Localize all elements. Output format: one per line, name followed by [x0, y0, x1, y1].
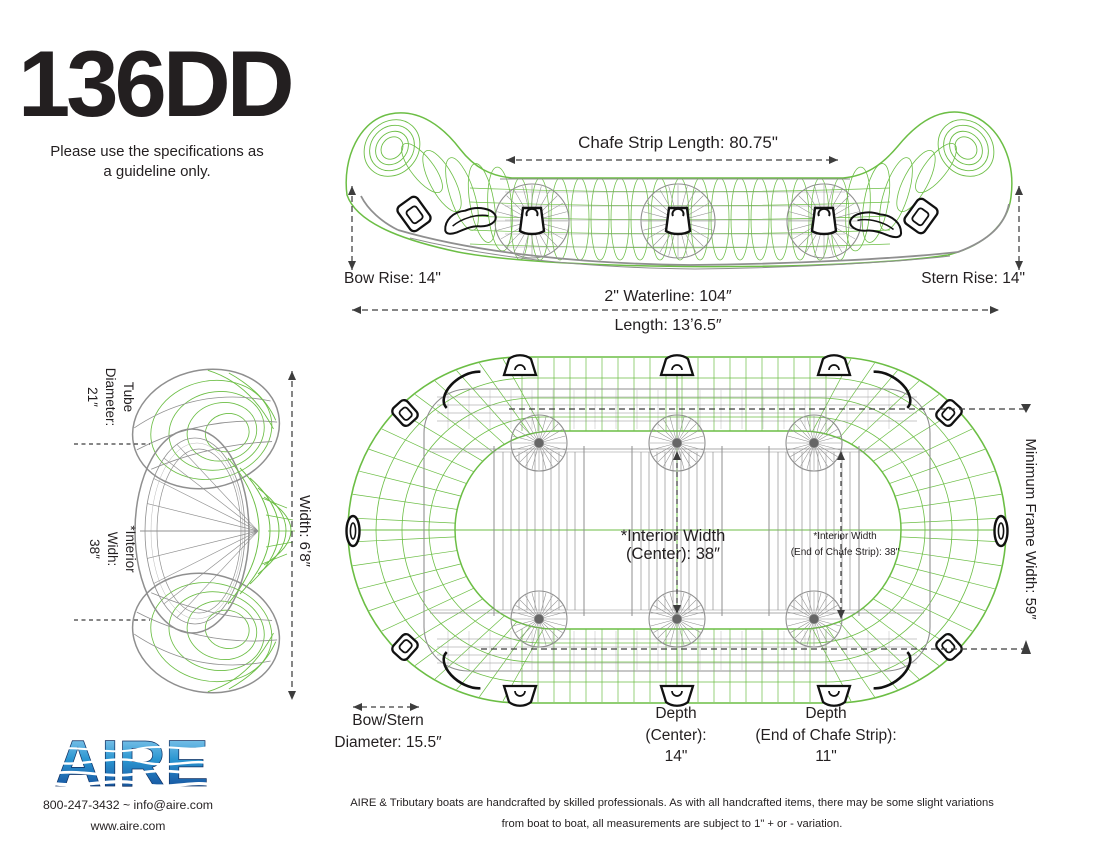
width-label: Width: 6ʼ8″: [293, 456, 313, 606]
bow-rise-label: Bow Rise: 14": [344, 270, 441, 288]
tube-diameter-line3: 21″: [82, 342, 100, 452]
model-title: 136DD: [18, 30, 291, 138]
bow-stern-diameter-line1: Bow/Stern: [308, 710, 468, 732]
interior-width-end-label: *Interior Width (End of Chafe Strip): 38…: [735, 529, 955, 560]
contact-info: 800-247-3432 ~ info@aire.com: [28, 798, 228, 812]
tube-diameter-line1: Tube: [119, 342, 137, 452]
depth-end-label: Depth (End of Chafe Strip): 11": [716, 703, 936, 768]
bow-stern-diameter-line2: Diameter: 15.5″: [308, 732, 468, 754]
guideline-note: Please use the specifications as a guide…: [27, 142, 287, 181]
front-view-drawing: [121, 356, 295, 706]
interior-width-end-line2: (End of Chafe Strip): 38": [735, 545, 955, 561]
disclaimer-line2: from boat to boat, all measurements are …: [342, 814, 1002, 835]
interior-width-end-line1: *Interior Width: [735, 529, 955, 545]
length-label: Length: 13ʼ6.5″: [518, 317, 818, 335]
interior-width-front-line3: 38″: [84, 494, 102, 604]
waterline-label: 2" Waterline: 104″: [518, 288, 818, 306]
interior-width-front-line2: Widh:: [103, 494, 121, 604]
spec-sheet: 136DD Please use the specifications as a…: [0, 0, 1100, 850]
interior-width-front-label: *Interior Widh: 38″: [81, 494, 139, 604]
disclaimer-text: AIRE & Tributary boats are handcrafted b…: [342, 793, 1002, 836]
depth-end-line2: (End of Chafe Strip):: [716, 725, 936, 747]
tube-diameter-label: Tube Diameter: 21″: [79, 342, 137, 452]
interior-width-front-line1: *Interior: [121, 494, 139, 604]
bow-stern-diameter-label: Bow/Stern Diameter: 15.5″: [308, 710, 468, 753]
stern-rise-label: Stern Rise: 14": [900, 270, 1025, 288]
depth-end-line3: 11": [716, 746, 936, 768]
guideline-note-line1: Please use the specifications as: [27, 142, 287, 162]
website-link: www.aire.com: [28, 819, 228, 833]
depth-end-line1: Depth: [716, 703, 936, 725]
guideline-note-line2: a guideline only.: [27, 162, 287, 182]
tube-diameter-line2: Diameter:: [101, 342, 119, 452]
minimum-frame-width-label: Minimum Frame Width: 59″: [1019, 409, 1039, 649]
chafe-strip-length-label: Chafe Strip Length: 80.75": [518, 133, 838, 153]
disclaimer-line1: AIRE & Tributary boats are handcrafted b…: [342, 793, 1002, 814]
aire-logo: AIRE: [46, 724, 216, 800]
